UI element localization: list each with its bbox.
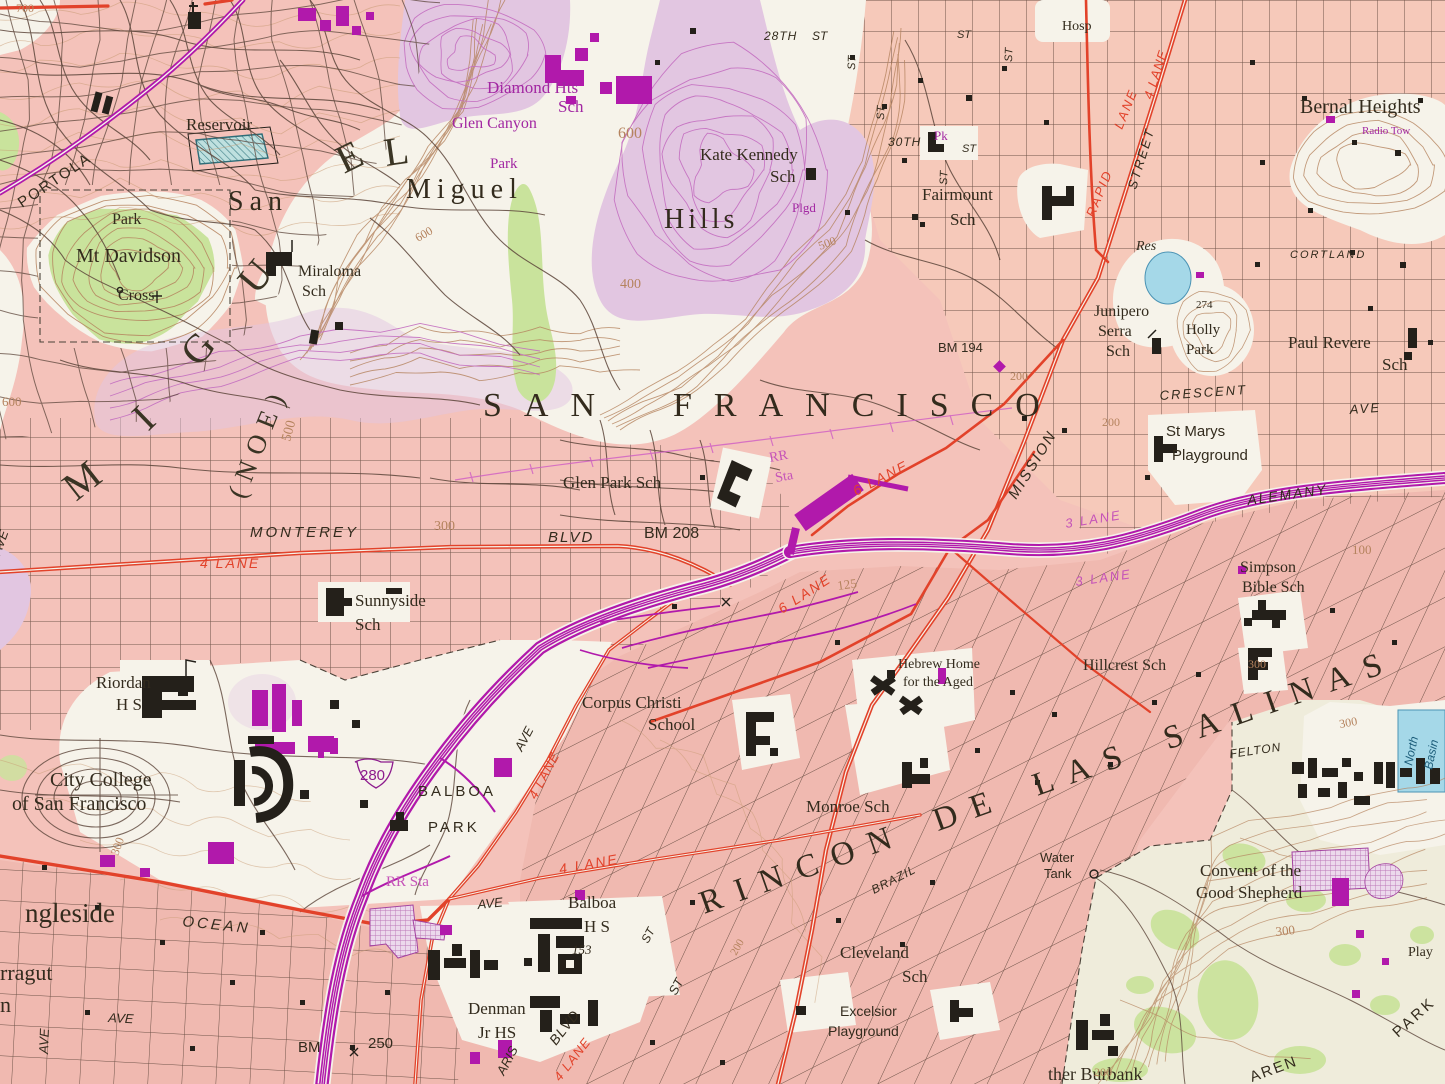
svg-text:ngleside: ngleside — [25, 898, 115, 928]
svg-text:Water: Water — [1040, 850, 1075, 865]
svg-text:Playground: Playground — [828, 1023, 899, 1039]
svg-text:600: 600 — [618, 125, 642, 142]
svg-text:Mt Davidson: Mt Davidson — [76, 245, 181, 267]
svg-text:AVE: AVE — [36, 1028, 52, 1055]
svg-text:St Marys: St Marys — [1166, 423, 1225, 440]
svg-text:Denman: Denman — [468, 999, 526, 1018]
svg-text:Diamond Hts: Diamond Hts — [487, 78, 578, 97]
svg-text:Cleveland: Cleveland — [840, 943, 909, 962]
svg-text:274: 274 — [1196, 299, 1213, 311]
svg-text:H S: H S — [116, 695, 142, 714]
svg-text:Good Shepherd: Good Shepherd — [1196, 883, 1303, 902]
svg-text:for the Aged: for the Aged — [903, 675, 973, 690]
svg-text:Paul Revere: Paul Revere — [1288, 333, 1371, 352]
svg-text:School: School — [648, 715, 696, 734]
svg-text:4 LANE: 4 LANE — [200, 555, 260, 571]
svg-text:Sch: Sch — [770, 167, 796, 186]
svg-text:rragut: rragut — [0, 960, 53, 985]
svg-text:200: 200 — [1102, 415, 1120, 429]
svg-text:Miraloma: Miraloma — [298, 263, 361, 280]
svg-text:Pk: Pk — [934, 128, 948, 143]
svg-text:Serra: Serra — [1098, 323, 1132, 340]
svg-text:200: 200 — [1010, 369, 1028, 383]
svg-text:AVE: AVE — [476, 894, 504, 912]
svg-text:Excelsior: Excelsior — [840, 1003, 897, 1019]
svg-text:Park: Park — [112, 211, 141, 228]
svg-text:ST: ST — [957, 29, 972, 41]
svg-text:Playground: Playground — [1172, 447, 1248, 464]
svg-text:Fairmount: Fairmount — [922, 185, 993, 204]
svg-text:Hillcrest Sch: Hillcrest Sch — [1083, 657, 1166, 674]
svg-text:of San Francisco: of San Francisco — [12, 793, 146, 815]
svg-text:ST: ST — [812, 29, 829, 43]
svg-text:PARK: PARK — [428, 819, 480, 836]
svg-text:Sch: Sch — [355, 615, 381, 634]
svg-text:Junipero: Junipero — [1094, 303, 1149, 320]
svg-text:ST: ST — [846, 54, 859, 70]
svg-text:City College: City College — [50, 769, 152, 791]
svg-text:125: 125 — [836, 575, 857, 593]
svg-text:AVE: AVE — [107, 1010, 134, 1026]
svg-text:Park: Park — [1186, 342, 1214, 358]
svg-text:Hosp: Hosp — [1062, 19, 1092, 34]
svg-text:Sch: Sch — [558, 97, 584, 116]
svg-text:Sta: Sta — [774, 468, 795, 486]
svg-text:BM 194: BM 194 — [938, 340, 983, 355]
svg-text:SAN FRANCISCO: SAN FRANCISCO — [483, 387, 1062, 424]
svg-text:Sch: Sch — [950, 210, 976, 229]
svg-text:Hebrew Home: Hebrew Home — [898, 657, 980, 672]
svg-text:Res: Res — [1135, 239, 1157, 254]
svg-text:Play: Play — [1408, 945, 1433, 960]
svg-text:280: 280 — [360, 767, 385, 784]
svg-text:Holly: Holly — [1186, 322, 1221, 338]
svg-text:H S: H S — [584, 917, 610, 936]
svg-text:250: 250 — [368, 1035, 393, 1052]
svg-text:Jr HS: Jr HS — [478, 1023, 516, 1042]
svg-text:Tank: Tank — [1044, 866, 1072, 881]
svg-text:300: 300 — [1248, 657, 1266, 671]
svg-text:600: 600 — [2, 394, 22, 409]
svg-text:ST: ST — [1003, 46, 1016, 62]
svg-text:Sch: Sch — [1382, 355, 1408, 374]
svg-text:Sch: Sch — [902, 967, 928, 986]
svg-text:Kate Kennedy: Kate Kennedy — [700, 145, 798, 164]
svg-text:Cross: Cross — [118, 287, 154, 304]
svg-text:700: 700 — [16, 1, 34, 15]
svg-text:ST: ST — [875, 104, 888, 120]
svg-text:n: n — [0, 992, 11, 1017]
svg-text:Balboa: Balboa — [568, 893, 617, 912]
svg-text:Simpson: Simpson — [1240, 559, 1296, 576]
svg-text:Hills: Hills — [664, 204, 738, 235]
svg-text:MONTEREY: MONTEREY — [250, 524, 359, 541]
svg-text:BALBOA: BALBOA — [418, 783, 496, 800]
svg-text:153: 153 — [572, 942, 592, 957]
svg-text:BLVD: BLVD — [548, 529, 594, 546]
svg-text:Reservoir: Reservoir — [186, 115, 252, 134]
svg-text:400: 400 — [620, 277, 641, 292]
svg-text:28TH: 28TH — [763, 29, 797, 43]
svg-text:ST: ST — [938, 169, 951, 185]
svg-text:Convent of the: Convent of the — [1200, 861, 1301, 880]
svg-text:300: 300 — [434, 519, 455, 534]
svg-text:Bible Sch: Bible Sch — [1242, 579, 1305, 596]
svg-text:Bernal Heights: Bernal Heights — [1300, 96, 1421, 118]
svg-text:Glen Canyon: Glen Canyon — [452, 115, 537, 132]
svg-text:Park: Park — [490, 156, 518, 172]
svg-text:Sch: Sch — [1106, 343, 1130, 360]
svg-text:300: 300 — [1275, 922, 1296, 939]
svg-text:100: 100 — [1352, 542, 1372, 557]
svg-text:BM 208: BM 208 — [644, 525, 699, 542]
svg-text:Plgd: Plgd — [792, 200, 816, 215]
svg-text:Sunnyside: Sunnyside — [355, 591, 426, 610]
svg-text:Radio Tow: Radio Tow — [1362, 125, 1410, 137]
svg-text:RR Sta: RR Sta — [386, 874, 429, 890]
svg-text:Riordan: Riordan — [96, 673, 151, 692]
svg-text:San: San — [228, 186, 288, 217]
svg-text:Monroe Sch: Monroe Sch — [806, 797, 890, 816]
svg-text:BM: BM — [298, 1039, 321, 1056]
svg-text:30TH: 30TH — [888, 135, 921, 149]
svg-text:ST: ST — [962, 143, 977, 155]
svg-text:Miguel: Miguel — [406, 174, 523, 205]
svg-text:Corpus Christi: Corpus Christi — [582, 693, 682, 712]
svg-text:200: 200 — [1094, 1065, 1112, 1079]
svg-text:Glen Park Sch: Glen Park Sch — [563, 473, 662, 492]
svg-text:Sch: Sch — [302, 283, 326, 300]
svg-text:AVE: AVE — [1348, 400, 1381, 417]
svg-text:CORTLAND: CORTLAND — [1290, 249, 1366, 261]
